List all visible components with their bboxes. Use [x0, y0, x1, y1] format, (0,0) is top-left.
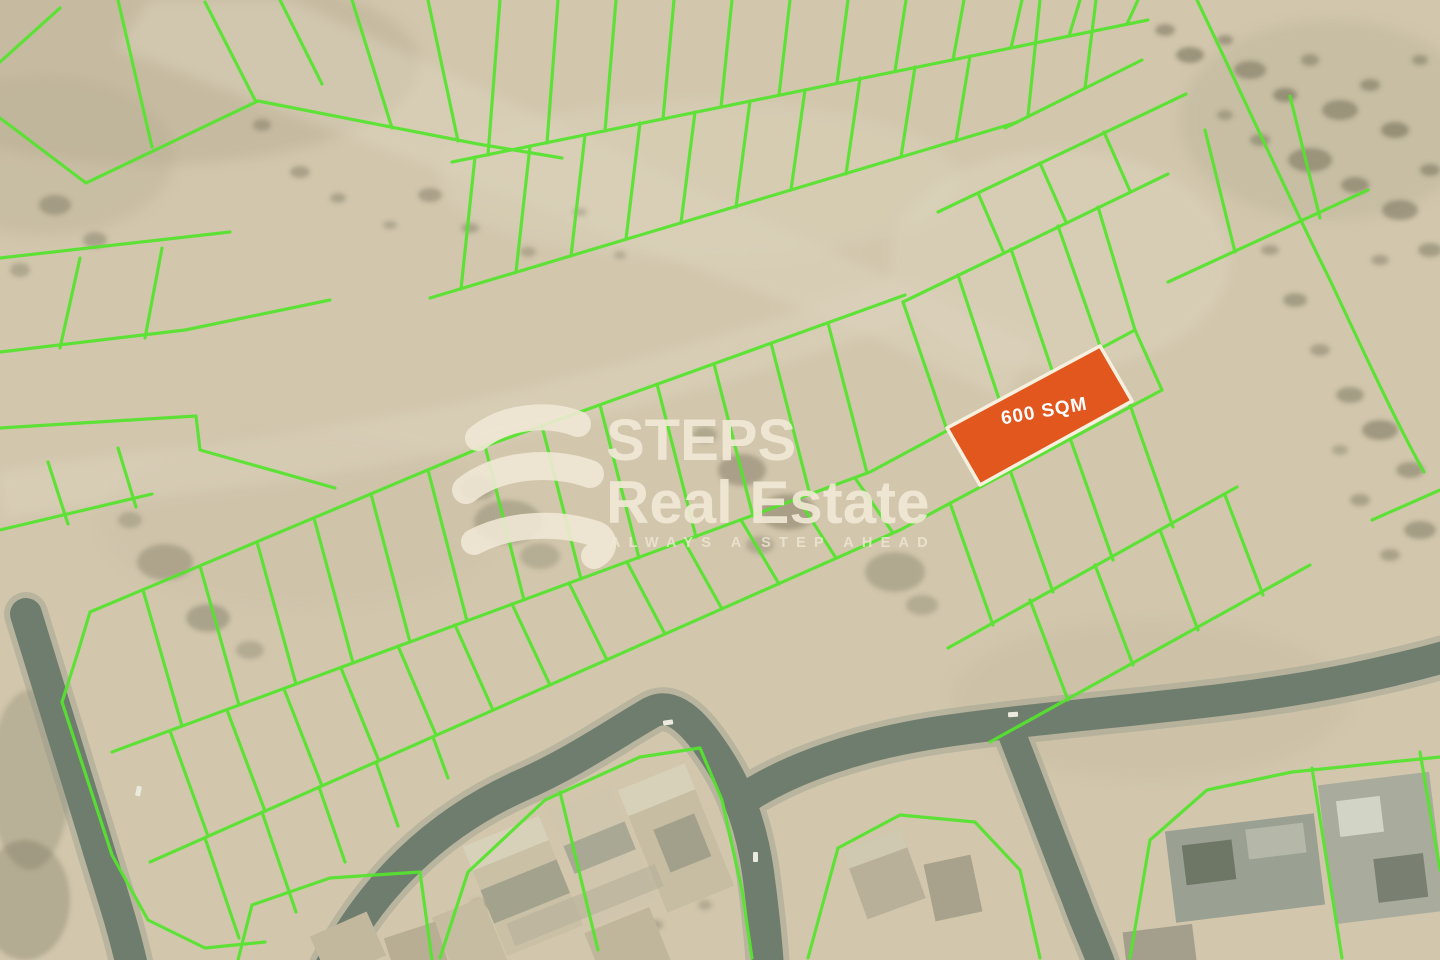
satellite-map: 600 SQM STEPS Real Estate ALWAYS A STEP … — [0, 0, 1440, 960]
brand-name-line2: Real Estate — [606, 469, 930, 536]
brand-name-line1: STEPS — [606, 408, 796, 473]
brand-tagline: ALWAYS A STEP AHEAD — [610, 535, 936, 551]
